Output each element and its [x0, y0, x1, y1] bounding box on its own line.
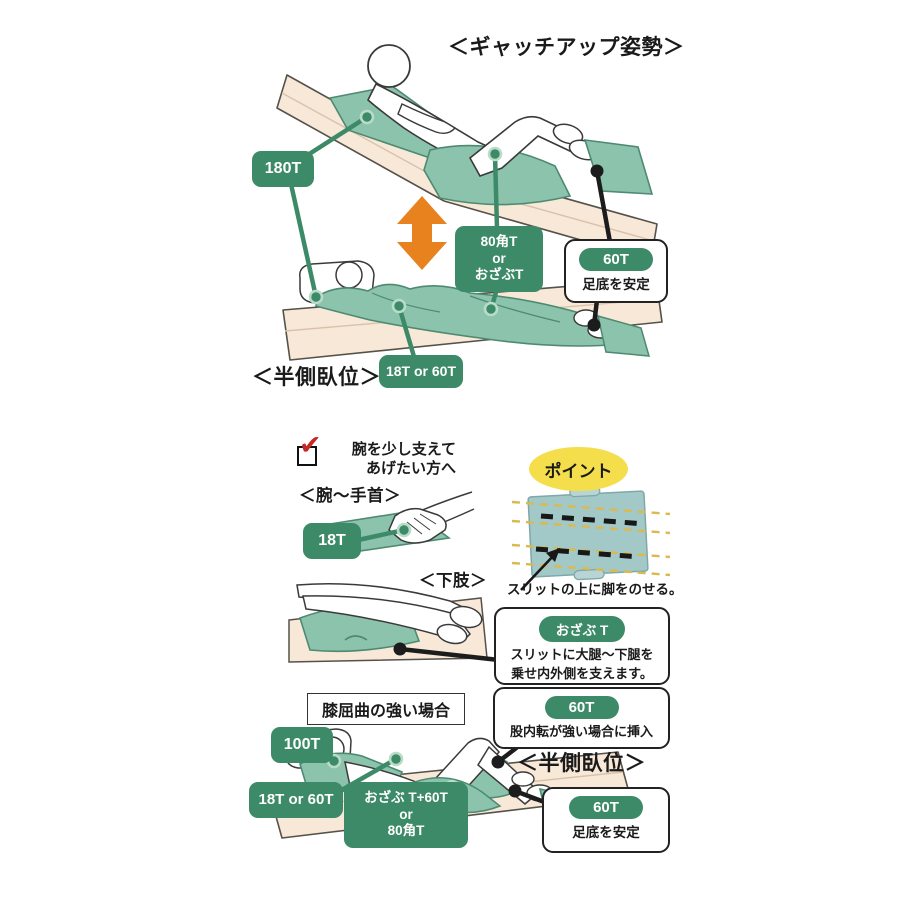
title-gatchup-posture: ＜ギャッチアップ姿勢＞	[448, 31, 685, 61]
updown-arrow-icon	[397, 196, 447, 270]
note-ozabu-usage: スリットに大腿～下腿を 乗せ内外側を支えます。	[496, 646, 668, 684]
note-box-adduction: 60T 股内転が強い場合に挿入	[493, 687, 670, 749]
note-arm-support: 腕を少し支えて あげたい方へ	[318, 441, 456, 479]
cushion-label-180t: 180T	[252, 151, 314, 187]
cushion-label-18t: 18T	[303, 523, 361, 559]
care-positioning-diagram: ＜ギャッチアップ姿勢＞ 180T 80角T or おざぶT 60T 足底を安定 …	[0, 0, 900, 900]
note-box-foot-support-top: 60T 足底を安定	[564, 239, 668, 303]
cushion-badge-ozabu: おざぶ T	[539, 616, 625, 642]
red-checkmark-icon: ✔	[299, 432, 322, 459]
caption-arm-wrist: ＜腕～手首＞	[299, 482, 401, 506]
slit-pad-illustration	[512, 484, 670, 590]
cushion-label-80kaku-or-ozabu: 80角T or おざぶT	[455, 226, 543, 292]
cushion-badge-60t-top: 60T	[579, 248, 653, 271]
lower-limb-illustration	[289, 584, 487, 662]
note-box-ozabu: おざぶ T スリットに大腿～下腿を 乗せ内外側を支えます。	[494, 607, 670, 685]
caption-sidelying-top: ＜半側臥位＞	[252, 361, 381, 391]
cushion-label-18t-or-60t-bottom: 18T or 60T	[249, 782, 343, 818]
note-box-foot-support-bottom: 60T 足底を安定	[542, 787, 670, 853]
cushion-label-ozabu-combo: おざぶ T+60T or 80角T	[344, 782, 468, 848]
case-title-knee-flexion: 膝屈曲の強い場合	[307, 693, 465, 725]
cushion-badge-60t-foot: 60T	[569, 796, 643, 819]
caption-sidelying-bottom: ＜半側臥位＞	[517, 747, 646, 777]
cushion-label-18t-or-60t-top: 18T or 60T	[379, 355, 463, 388]
cushion-label-100t: 100T	[271, 727, 333, 763]
point-callout: ポイント	[529, 447, 628, 491]
cushion-badge-60t-adduction: 60T	[545, 696, 619, 719]
note-adduction: 股内転が強い場合に挿入	[495, 723, 668, 742]
note-foot-support-top: 足底を安定	[566, 275, 666, 295]
note-foot-support-bottom: 足底を安定	[544, 823, 668, 843]
caption-lower-limb: ＜下肢＞	[419, 567, 487, 591]
note-slit-leg-placement: スリットの上に脚をのせる。	[507, 578, 707, 598]
